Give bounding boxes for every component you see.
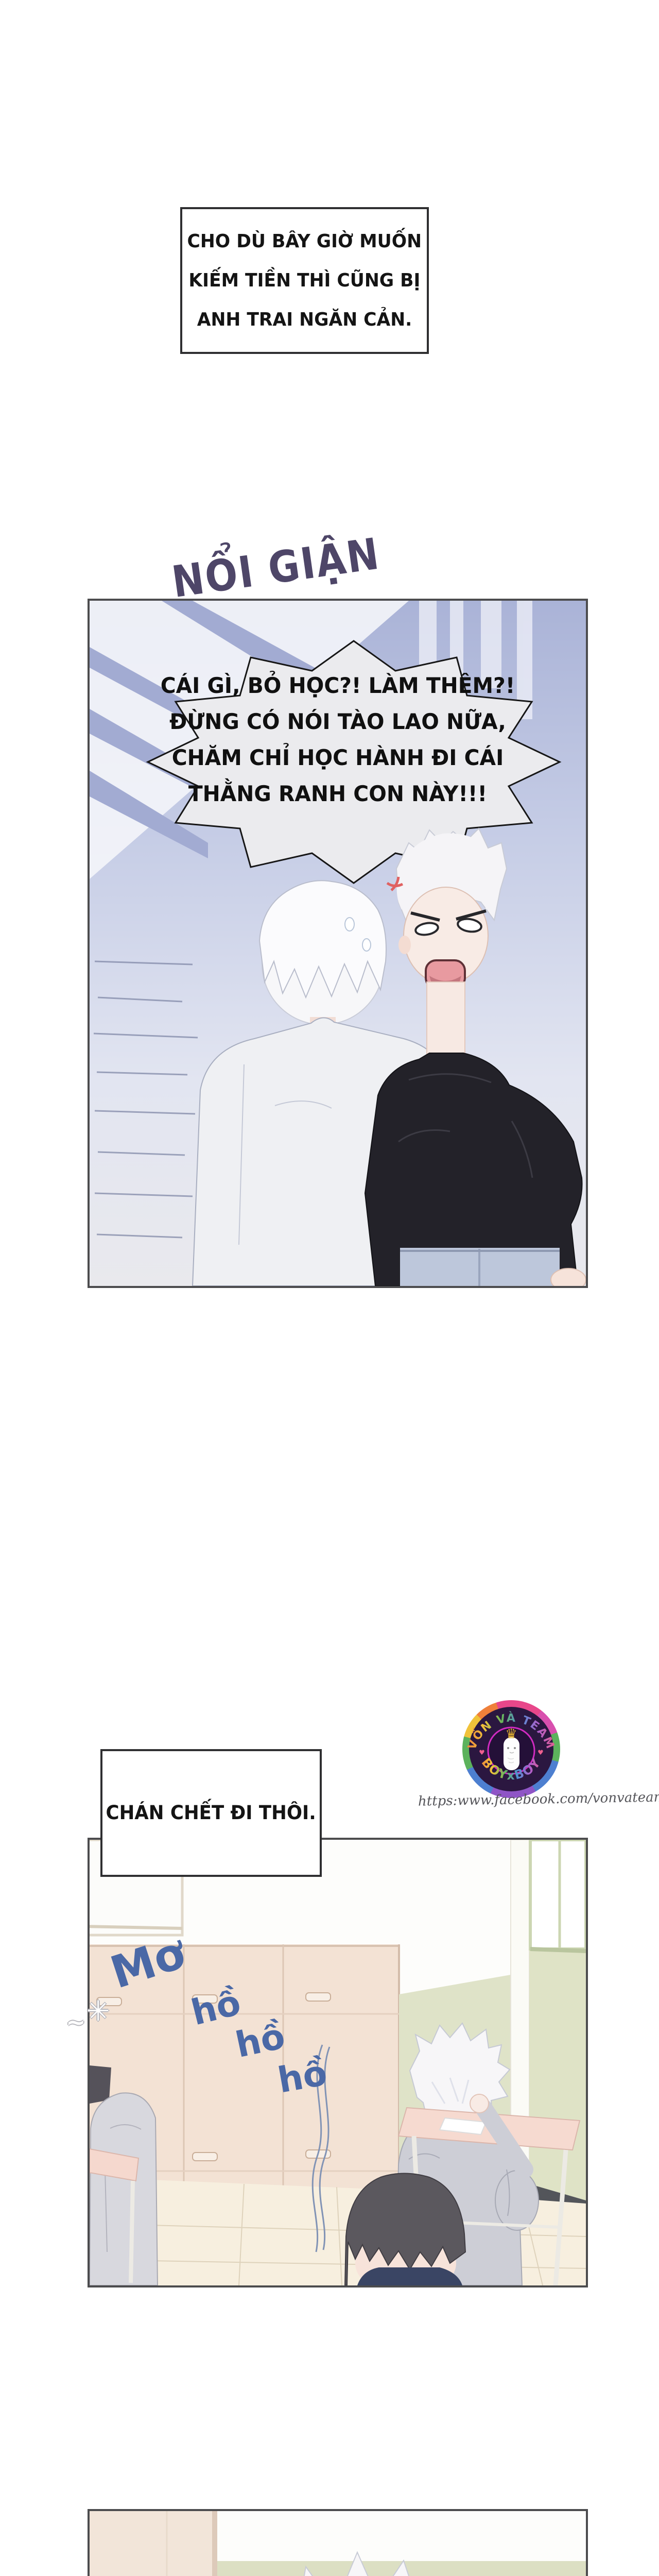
panel4-artwork [90, 2511, 586, 2576]
bubble-line: THẰNG RANH CON NÀY!!! [95, 776, 581, 812]
team-logo-badge: ♛ ♥ ♥ VỐN VÀ TEAM BOYxBOY [462, 1700, 560, 1798]
logo-details: ♛ ♥ ♥ VỐN VÀ TEAM BOYxBOY [462, 1700, 560, 1798]
narration-box-bored: CHÁN CHẾT ĐI THÔI. [100, 1749, 322, 1877]
window [530, 1840, 586, 1951]
bubble-line: CHĂM CHỈ HỌC HÀNH ĐI CÁI [95, 740, 581, 776]
sweat-drop [345, 918, 354, 931]
hoodie-boy-hand [470, 2094, 489, 2113]
bubble-line: CÁI GÌ, BỎ HỌC?! LÀM THÊM?! [95, 668, 581, 704]
narration-box-top: CHO DÙ BÂY GIỜ MUỐN KIẾM TIỀN THÌ CŨNG B… [180, 207, 429, 354]
narration-line: KIẾM TIỀN THÌ CŨNG BỊ [188, 261, 420, 300]
panel3-artwork [90, 1840, 586, 2285]
sfx-snore-word: hồ [275, 2053, 330, 2101]
narration-line: ANH TRAI NGĂN CẢN. [197, 300, 412, 340]
narration-line: CHÁN CHẾT ĐI THÔI. [106, 1802, 316, 1824]
crown-icon: ♛ [505, 1726, 517, 1742]
sweat-drop [362, 939, 371, 951]
narration-line: CHO DÙ BÂY GIỜ MUỐN [187, 222, 422, 261]
speech-bubble-text: CÁI GÌ, BỎ HỌC?! LÀM THÊM?! ĐỪNG CÓ NÓI … [88, 668, 588, 812]
ghost-icon [504, 1737, 519, 1770]
foreground-classmate [345, 2174, 465, 2286]
bubble-line: ĐỪNG CÓ NÓI TÀO LAO NỮA, [95, 704, 581, 740]
panel-closeup-sleeping [88, 2509, 588, 2576]
tilde-icon: ~ [66, 2008, 86, 2036]
sparkle-icon: ✳ [86, 1995, 110, 2027]
heart-icon-right: ♥ [537, 1749, 544, 1757]
cabinet [90, 2511, 217, 2576]
comic-page: CHO DÙ BÂY GIỜ MUỐN KIẾM TIỀN THÌ CŨNG B… [0, 0, 659, 2576]
heart-icon-left: ♥ [479, 1749, 485, 1757]
watermark-link: https:www.facebook.com/vonvateam.1812 [418, 1790, 639, 1809]
sfx-angry-title: NỔI GIẬN [169, 528, 383, 607]
panel-classroom [88, 1838, 588, 2287]
